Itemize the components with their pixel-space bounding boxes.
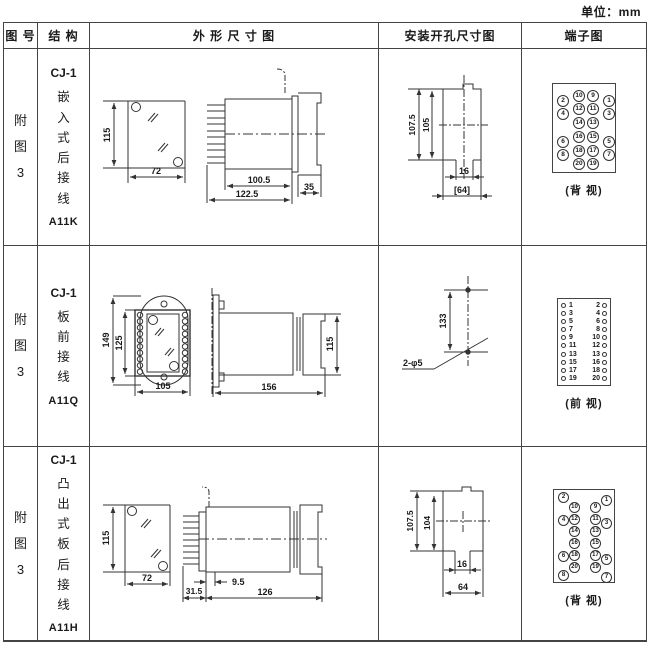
terminal-pin: 13 bbox=[590, 526, 601, 537]
front-view bbox=[103, 505, 170, 586]
terminal-circle bbox=[561, 303, 566, 308]
terminal-number: 5 bbox=[569, 318, 573, 325]
dim-label: 149 bbox=[101, 332, 111, 347]
terminal-pin: 3 bbox=[603, 108, 615, 120]
terminal-pin: 16 bbox=[573, 131, 585, 143]
terminal-number: 17 bbox=[569, 367, 577, 374]
outline-cell-a11k: 115 72 100.5 122.5 35 bbox=[90, 49, 379, 246]
col-header-outline: 外 形 尺 寸 图 bbox=[90, 23, 379, 49]
terminal-pin: 9 bbox=[590, 502, 601, 513]
dim-label: 16 bbox=[457, 559, 467, 569]
unit-label: 单位：mm bbox=[581, 3, 641, 20]
terminal-pin: 4 bbox=[557, 108, 569, 120]
terminal-pin: 20 bbox=[573, 158, 585, 170]
side-view bbox=[183, 487, 327, 602]
terminal-diagram-a11k: 2 4 6 8 10 12 14 16 18 20 9 11 13 15 17 … bbox=[552, 83, 616, 173]
terminal-pin: 13 bbox=[587, 117, 599, 129]
terminal-pin: 1 bbox=[601, 495, 612, 506]
dim-label: 133 bbox=[438, 313, 448, 328]
dim-label: 16 bbox=[459, 166, 469, 176]
document-page: 单位：mm 图 号 结 构 外 形 尺 寸 图 安装开孔尺寸图 端子图 附图3 … bbox=[0, 0, 651, 649]
structure-cell-a11q: CJ-1 板前接线 A11Q bbox=[38, 246, 90, 447]
terminal-circle bbox=[561, 376, 566, 381]
terminal-row: 1718 bbox=[558, 367, 610, 374]
outline-cell-a11h: 115 72 31.5 9.5 126 bbox=[90, 447, 379, 640]
terminal-number: 20 bbox=[592, 375, 600, 382]
terminal-number: 13 bbox=[569, 351, 577, 358]
terminal-pin: 16 bbox=[569, 538, 580, 549]
front-view bbox=[113, 296, 190, 396]
terminal-pin: 1 bbox=[603, 95, 615, 107]
terminal-pin: 11 bbox=[587, 103, 599, 115]
dim-label: 31.5 bbox=[186, 586, 203, 596]
terminal-number: 8 bbox=[596, 326, 600, 333]
fig-no-cell-a11k: 附图3 bbox=[4, 49, 38, 246]
dim-label: 125 bbox=[114, 335, 124, 350]
dim-label: 105 bbox=[155, 381, 170, 391]
terminal-circle bbox=[561, 311, 566, 316]
terminal-number: 7 bbox=[569, 326, 573, 333]
dim-label: [64] bbox=[454, 185, 470, 195]
terminal-circle bbox=[602, 360, 607, 365]
col-header-structure: 结 构 bbox=[38, 23, 90, 49]
dim-label: 72 bbox=[151, 166, 161, 176]
terminal-number: 1 bbox=[569, 302, 573, 309]
terminal-pin: 14 bbox=[569, 526, 580, 537]
terminal-circle bbox=[602, 368, 607, 373]
terminal-number: 4 bbox=[596, 310, 600, 317]
terminal-number: 11 bbox=[569, 342, 576, 349]
hole-spec-label: 2-φ5 bbox=[403, 358, 422, 368]
terminal-row: 56 bbox=[558, 318, 610, 325]
terminal-circle bbox=[561, 360, 566, 365]
terminal-diagram-a11q: 12 34 56 78 910 1112 1313 1516 1718 1920 bbox=[557, 298, 611, 386]
fig-no-cell-a11q: 附图3 bbox=[4, 246, 38, 447]
terminal-pin: 2 bbox=[558, 492, 569, 503]
terminal-number: 9 bbox=[569, 334, 573, 341]
dim-label: 9.5 bbox=[232, 577, 245, 587]
terminal-cell-a11h: 2 4 6 8 10 12 14 16 18 20 9 11 13 15 17 … bbox=[522, 447, 646, 640]
terminal-number: 13 bbox=[592, 351, 600, 358]
col-header-terminal: 端子图 bbox=[522, 23, 646, 49]
terminal-row: 1112 bbox=[558, 342, 610, 349]
terminal-pin: 18 bbox=[569, 550, 580, 561]
terminal-pin: 10 bbox=[569, 502, 580, 513]
terminal-row: 1920 bbox=[558, 375, 610, 382]
mounting-text: 凸出式板后接线 bbox=[56, 474, 71, 616]
cutout-outline bbox=[408, 75, 492, 200]
terminal-number: 12 bbox=[592, 342, 600, 349]
terminal-cell-a11k: 2 4 6 8 10 12 14 16 18 20 9 11 13 15 17 … bbox=[522, 49, 646, 246]
terminal-pin: 14 bbox=[573, 117, 585, 129]
structure-cell-a11h: CJ-1 凸出式板后接线 A11H bbox=[38, 447, 90, 640]
terminal-row: 12 bbox=[558, 302, 610, 309]
terminal-pin: 7 bbox=[603, 149, 615, 161]
terminal-pin: 18 bbox=[573, 145, 585, 157]
terminal-pin: 5 bbox=[603, 136, 615, 148]
outline-drawing-a11h: 115 72 31.5 9.5 126 bbox=[95, 485, 378, 640]
dim-label: 107.5 bbox=[405, 510, 415, 532]
model-text: CJ-1 bbox=[50, 453, 76, 467]
terminal-circle bbox=[602, 327, 607, 332]
terminal-circle bbox=[561, 343, 566, 348]
outline-drawing-a11k: 115 72 100.5 122.5 35 bbox=[95, 63, 378, 223]
terminal-circle bbox=[602, 335, 607, 340]
outline-cell-a11q: 149 125 105 156 115 bbox=[90, 246, 379, 447]
dim-label: 72 bbox=[142, 573, 152, 583]
front-view bbox=[103, 101, 185, 183]
side-view bbox=[212, 288, 341, 397]
dim-label: 126 bbox=[257, 587, 272, 597]
code-text: A11Q bbox=[48, 395, 78, 407]
terminal-circle bbox=[602, 311, 607, 316]
install-cell-a11k: 107.5 105 16 [64] bbox=[379, 49, 522, 246]
terminal-circle bbox=[561, 368, 566, 373]
terminal-circle bbox=[602, 343, 607, 348]
model-text: CJ-1 bbox=[50, 286, 76, 300]
install-cell-a11q: 133 2-φ5 bbox=[379, 246, 522, 447]
terminal-pin: 12 bbox=[569, 514, 580, 525]
terminal-pin: 15 bbox=[587, 131, 599, 143]
terminal-row: 910 bbox=[558, 334, 610, 341]
fig-no-text: 附图3 bbox=[13, 505, 28, 583]
dim-label: 105 bbox=[421, 118, 431, 132]
fig-no-cell-a11h: 附图3 bbox=[4, 447, 38, 640]
install-drawing-a11k: 107.5 105 16 [64] bbox=[384, 63, 519, 223]
dim-label: 104 bbox=[422, 516, 432, 530]
spec-table: 图 号 结 构 外 形 尺 寸 图 安装开孔尺寸图 端子图 附图3 CJ-1 嵌… bbox=[3, 22, 647, 642]
terminal-number: 2 bbox=[596, 302, 600, 309]
terminal-pin: 5 bbox=[601, 554, 612, 565]
col-header-fig-no: 图 号 bbox=[4, 23, 38, 49]
fig-no-text: 附图3 bbox=[13, 108, 28, 186]
terminal-diagram-a11h: 2 4 6 8 10 12 14 16 18 20 9 11 13 15 17 … bbox=[553, 489, 615, 583]
terminal-number: 19 bbox=[569, 375, 577, 382]
terminal-pin: 8 bbox=[557, 149, 569, 161]
terminal-pin: 8 bbox=[558, 570, 569, 581]
terminal-number: 3 bbox=[569, 310, 573, 317]
mounting-text: 嵌入式后接线 bbox=[56, 87, 71, 209]
dim-label: 115 bbox=[325, 337, 335, 352]
terminal-circle bbox=[602, 319, 607, 324]
dim-label: 64 bbox=[458, 582, 468, 592]
fig-no-text: 附图3 bbox=[13, 307, 28, 385]
terminal-circle bbox=[561, 327, 566, 332]
terminal-number: 15 bbox=[569, 359, 577, 366]
install-drawing-a11h: 107.5 104 16 64 bbox=[384, 485, 519, 640]
terminal-number: 16 bbox=[592, 359, 600, 366]
dim-label: 100.5 bbox=[248, 175, 271, 185]
terminal-pin: 11 bbox=[590, 514, 601, 525]
dim-label: 107.5 bbox=[407, 114, 417, 136]
terminal-pin: 2 bbox=[557, 95, 569, 107]
terminal-pin: 19 bbox=[590, 562, 601, 573]
dim-label: 35 bbox=[304, 182, 314, 192]
terminal-pin: 17 bbox=[590, 550, 601, 561]
mounting-text: 板前接线 bbox=[56, 307, 71, 388]
terminal-pin: 6 bbox=[557, 136, 569, 148]
terminal-circle bbox=[602, 303, 607, 308]
view-label: (前 视) bbox=[565, 395, 602, 411]
terminal-circle bbox=[602, 376, 607, 381]
terminal-circle bbox=[561, 319, 566, 324]
terminal-number: 18 bbox=[592, 367, 600, 374]
terminal-row: 1313 bbox=[558, 351, 610, 358]
terminal-circle bbox=[561, 335, 566, 340]
dim-label: 156 bbox=[261, 382, 276, 392]
terminal-pin: 4 bbox=[558, 515, 569, 526]
terminal-pin: 3 bbox=[601, 518, 612, 529]
terminal-pin: 19 bbox=[587, 158, 599, 170]
terminal-pin: 10 bbox=[573, 90, 585, 102]
terminal-pin: 12 bbox=[573, 103, 585, 115]
terminal-circle bbox=[602, 352, 607, 357]
dim-label: 115 bbox=[101, 531, 111, 546]
install-drawing-a11q: 133 2-φ5 bbox=[384, 262, 519, 422]
terminal-number: 6 bbox=[596, 318, 600, 325]
terminal-pin: 7 bbox=[601, 572, 612, 583]
install-cell-a11h: 107.5 104 16 64 bbox=[379, 447, 522, 640]
view-label: (背 视) bbox=[565, 182, 602, 198]
terminal-circle bbox=[561, 352, 566, 357]
terminal-pin: 17 bbox=[587, 145, 599, 157]
terminal-pin: 9 bbox=[587, 90, 599, 102]
dim-label: 115 bbox=[102, 128, 112, 143]
col-header-install: 安装开孔尺寸图 bbox=[379, 23, 522, 49]
view-label: (背 视) bbox=[565, 592, 602, 608]
outline-drawing-a11q: 149 125 105 156 115 bbox=[95, 283, 378, 443]
dim-label: 122.5 bbox=[236, 189, 259, 199]
terminal-cell-a11q: 12 34 56 78 910 1112 1313 1516 1718 1920… bbox=[522, 246, 646, 447]
model-text: CJ-1 bbox=[50, 66, 76, 80]
terminal-pin: 15 bbox=[590, 538, 601, 549]
cutout-outline bbox=[410, 487, 490, 597]
structure-cell-a11k: CJ-1 嵌入式后接线 A11K bbox=[38, 49, 90, 246]
code-text: A11K bbox=[49, 216, 79, 228]
terminal-pin: 6 bbox=[558, 551, 569, 562]
terminal-row: 34 bbox=[558, 310, 610, 317]
terminal-row: 1516 bbox=[558, 359, 610, 366]
terminal-number: 10 bbox=[592, 334, 600, 341]
terminal-row: 78 bbox=[558, 326, 610, 333]
code-text: A11H bbox=[49, 622, 79, 634]
terminal-pin: 20 bbox=[569, 562, 580, 573]
